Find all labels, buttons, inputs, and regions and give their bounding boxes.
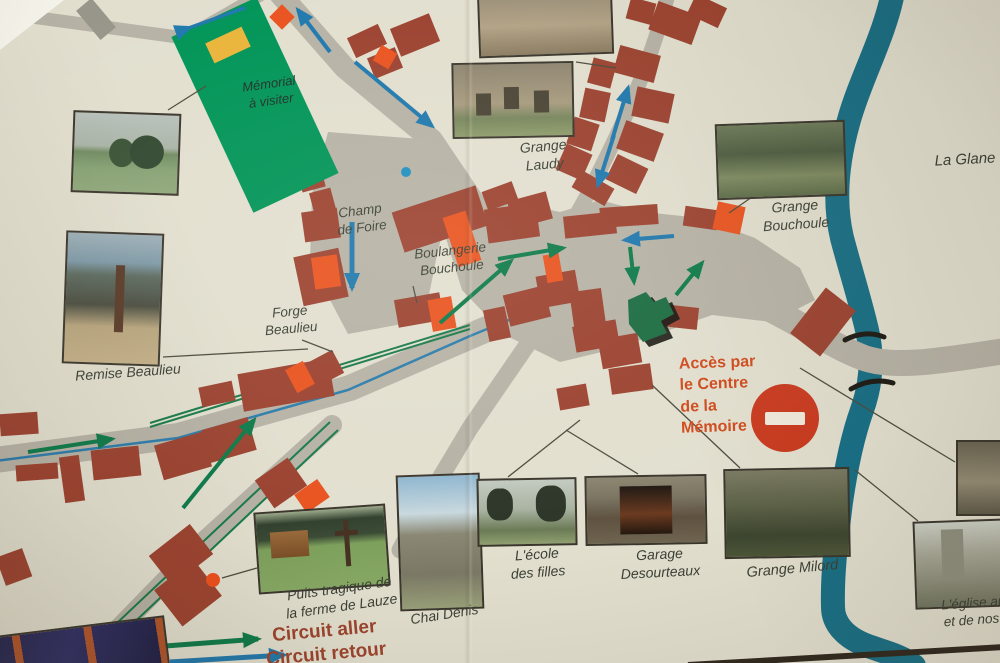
map-panel: Mémorial à visiter Champ de Foire Grange… — [0, 0, 1000, 663]
photo-right-edge-cut — [956, 440, 1000, 516]
location-dot-blue — [401, 167, 411, 177]
photo-garage-desourteaux — [584, 474, 707, 546]
label-ecole-des-filles: L'école des filles — [494, 543, 581, 585]
circuit-aller-arrow-icon — [152, 639, 258, 647]
location-dot-orange — [206, 573, 220, 587]
photo-grange-laudy — [451, 61, 574, 139]
photo-detail — [270, 530, 310, 559]
photo-champ-landscape — [71, 110, 182, 196]
no-entry-icon — [751, 384, 819, 452]
photo-ecole-des-filles — [476, 477, 577, 547]
label-grange-laudy: Grange Laudy — [499, 134, 590, 177]
photo-remise-beaulieu — [62, 230, 165, 366]
label-la-glane: La Glane — [925, 148, 1000, 171]
label-eglise: L'église autr et de nos jo — [927, 591, 1000, 632]
label-garage-desourteaux: Garage Desourteaux — [604, 543, 716, 585]
panel-bottom-edge — [688, 647, 1000, 663]
photo-ruin-top-edge — [477, 0, 614, 58]
label-forge-beaulieu: Forge Beaulieu — [247, 299, 335, 341]
photo-grange-bouchoule — [715, 120, 848, 200]
photo-grange-milord — [723, 467, 851, 559]
